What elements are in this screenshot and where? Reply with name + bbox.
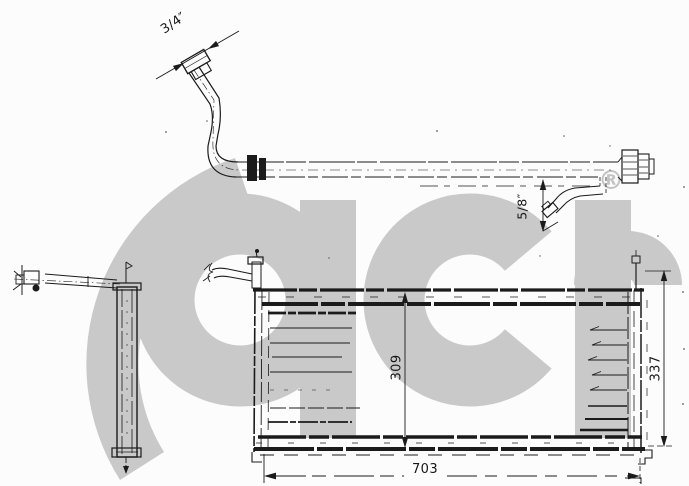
hose-branch-stub [539,177,606,218]
dim-label-overall-height-337: 337 [649,346,664,392]
condenser-line-art [0,0,689,486]
fins-right [580,327,628,431]
scan-noise-specks [165,120,685,405]
dim-label-core-height-309: 309 [390,345,405,391]
condenser-side-view [13,262,141,474]
hose-threaded-fitting [618,150,654,183]
dim-label-5-8-inch: 5/8″ [515,184,530,230]
bracket-bottom-left [252,452,262,462]
dim-label-overall-width-703: 703 [402,462,448,477]
condenser-front-view [203,249,672,484]
dim-line-3-4 [156,31,239,79]
fins-left [268,313,360,422]
dim-line-703 [264,454,640,483]
technical-drawing-page: acr ® [0,0,689,486]
hose-union-fitting [247,155,266,181]
hose-top-view [156,31,654,232]
front-view-inlet [203,249,263,288]
front-view-top-stud [632,250,640,290]
side-view-pipe [14,274,120,288]
